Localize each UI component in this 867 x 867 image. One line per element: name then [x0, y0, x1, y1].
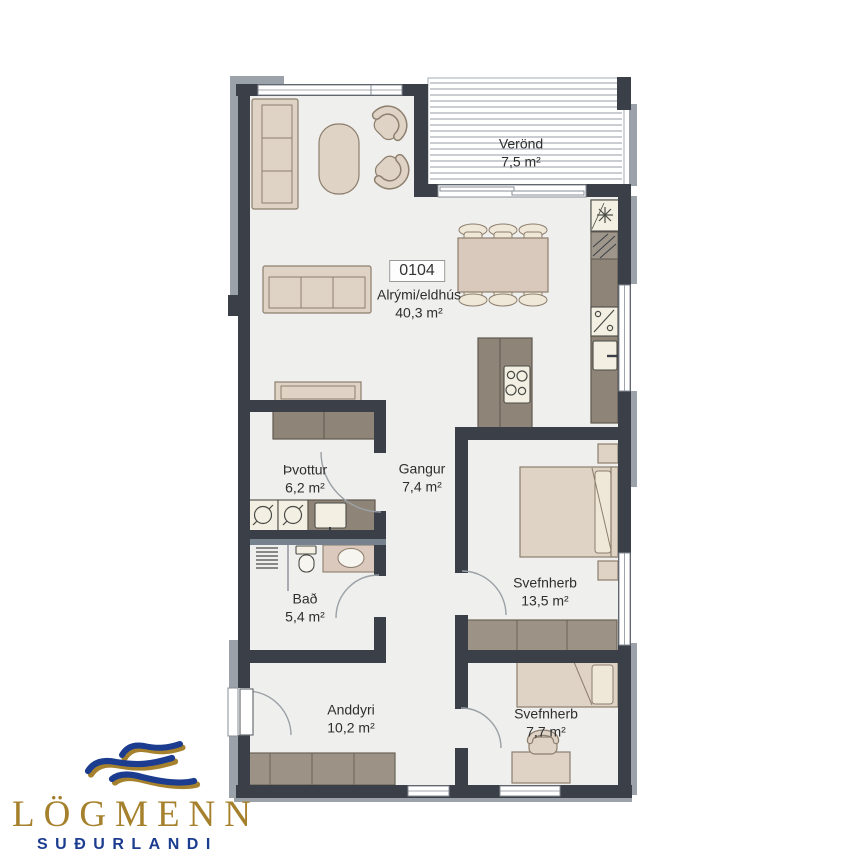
washer-1 [248, 500, 278, 531]
room-label-anddyri: Anddyri 10,2 m² [327, 702, 374, 737]
room-name: Verönd [499, 136, 543, 152]
window-bedroom1-right [619, 553, 630, 645]
dining-table [458, 238, 548, 292]
laundry-sink [308, 500, 375, 532]
window-anddyri-bottom [408, 786, 449, 796]
logo-waves-icon [78, 738, 203, 794]
wardrobe-anddyri [248, 753, 395, 785]
room-name: Svefnherb [514, 706, 578, 722]
oven [591, 232, 618, 259]
logo-title: LÖGMENN [12, 793, 260, 836]
nightstand-1 [598, 444, 618, 463]
window-bedroom2-bottom [500, 786, 560, 796]
cooktop [504, 366, 530, 403]
room-area: 7,7 m² [514, 723, 578, 741]
room-label-svefnherb2: Svefnherb 7,7 m² [514, 706, 578, 741]
room-label-gangur: Gangur 7,4 m² [399, 461, 446, 496]
logo-subtitle: SUÐURLANDI [37, 836, 218, 854]
door-entry-leaf [240, 689, 253, 735]
entry-threshold [228, 688, 238, 736]
coffee-table [319, 124, 359, 194]
wardrobe-bedroom1 [467, 620, 617, 651]
freezer [591, 200, 620, 231]
desk [512, 752, 570, 783]
room-name: Anddyri [327, 702, 374, 718]
washer-2 [278, 500, 308, 531]
room-name: Gangur [399, 461, 446, 477]
room-label-bad: Bað 5,4 m² [285, 591, 325, 626]
tv-unit [275, 382, 361, 403]
unit-badge: 0104 [389, 260, 445, 282]
kitchen-sink [593, 341, 618, 370]
lounge-sofa [263, 266, 371, 313]
room-area: 7,4 m² [399, 478, 446, 496]
laundry-counter [273, 408, 375, 439]
room-label-verond: Verönd 7,5 m² [499, 136, 543, 171]
window-living-top [258, 85, 402, 95]
floorplan-svg [0, 0, 867, 867]
room-area: 13,5 m² [513, 592, 577, 610]
sliding-door-veranda [438, 185, 586, 197]
room-area: 5,4 m² [285, 608, 325, 626]
room-name: Alrými/eldhús [377, 287, 461, 303]
floorplan-canvas: Verönd 7,5 m² 0104 Alrými/eldhús 40,3 m²… [0, 0, 867, 867]
room-label-alrymi: Alrými/eldhús 40,3 m² [377, 287, 461, 322]
unit-number: 0104 [399, 262, 435, 279]
nightstand-2 [598, 561, 618, 580]
living-sofa [252, 99, 298, 209]
room-area: 7,5 m² [499, 153, 543, 171]
window-kitchen-right [619, 285, 630, 391]
vanity-sink [323, 545, 378, 572]
room-label-thvottur: Þvottur 6,2 m² [283, 462, 327, 497]
bed-double [520, 467, 618, 557]
room-area: 6,2 m² [283, 479, 327, 497]
dishwasher [591, 307, 618, 336]
room-name: Bað [293, 591, 318, 607]
room-name: Svefnherb [513, 575, 577, 591]
room-area: 10,2 m² [327, 719, 374, 737]
room-label-svefnherb1: Svefnherb 13,5 m² [513, 575, 577, 610]
bed-single [517, 662, 618, 707]
room-name: Þvottur [283, 462, 327, 478]
room-area: 40,3 m² [377, 304, 461, 322]
